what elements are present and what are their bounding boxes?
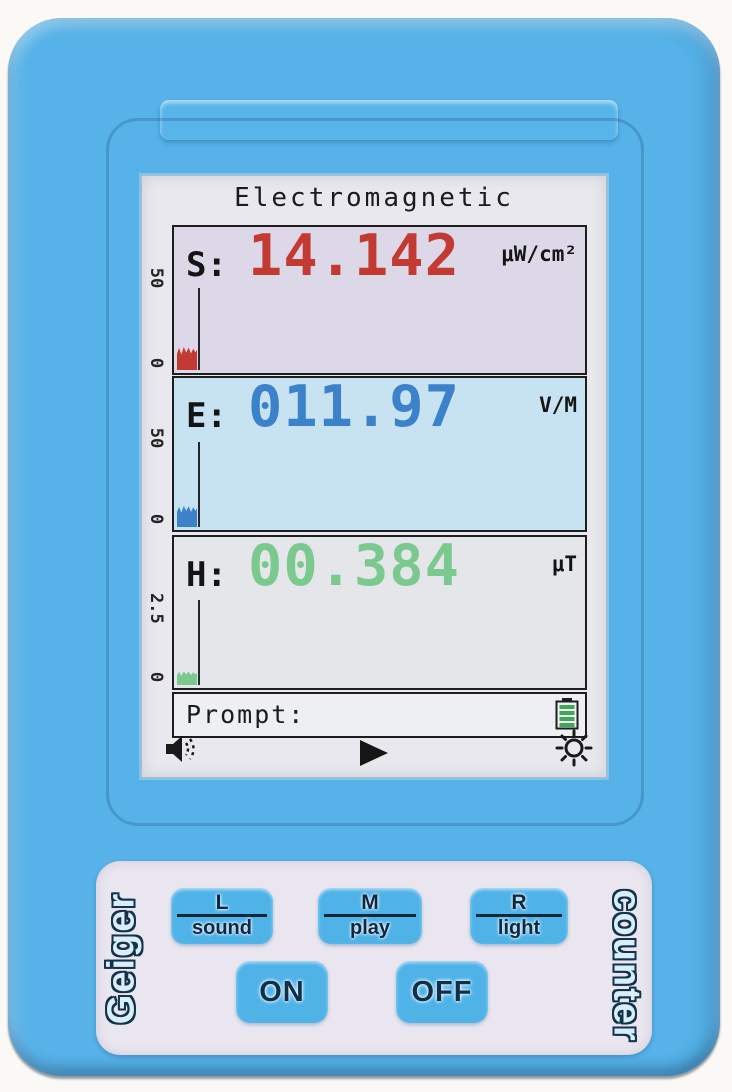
play-icon	[357, 738, 391, 768]
e-channel-unit: V/M	[539, 393, 577, 417]
counter-side-label: counter	[605, 889, 648, 1042]
right-function-button[interactable]: R light	[470, 888, 568, 944]
h-reading-panel: H: 00.384 μT	[172, 535, 587, 690]
s-axis-max-tick: 50	[146, 265, 166, 291]
middle-button-label: play	[350, 918, 390, 939]
h-axis-min-tick: 0	[146, 664, 166, 690]
h-axis-max-tick: 2.5	[146, 593, 166, 619]
geiger-side-label: Geiger	[101, 892, 144, 1024]
s-chart-axis	[198, 288, 200, 370]
s-axis-min-tick: 0	[146, 350, 166, 376]
h-chart-bar	[177, 670, 197, 685]
on-button[interactable]: ON	[236, 961, 328, 1023]
middle-button-key: M	[361, 893, 379, 913]
s-channel-label: S:	[186, 245, 227, 285]
lcd-screen: Electromagnetic S: 14.142 μW/cm² 50 0 E:…	[141, 175, 607, 778]
speaker-icon	[160, 730, 198, 768]
e-channel-value: 011.97	[248, 374, 460, 440]
e-reading-panel: E: 011.97 V/M	[172, 376, 587, 532]
screen-title: Electromagnetic	[142, 183, 606, 213]
brightness-icon	[554, 728, 594, 768]
detector-device-body: Electromagnetic S: 14.142 μW/cm² 50 0 E:…	[8, 18, 720, 1076]
s-channel-value: 14.142	[248, 223, 460, 289]
right-button-label: light	[498, 918, 540, 939]
e-axis-min-tick: 0	[146, 506, 166, 532]
e-axis-max-tick: 50	[146, 425, 166, 451]
s-channel-unit: μW/cm²	[501, 242, 577, 266]
s-reading-panel: S: 14.142 μW/cm²	[172, 225, 587, 375]
battery-icon	[555, 698, 579, 730]
left-button-key: L	[216, 893, 229, 913]
off-button[interactable]: OFF	[396, 961, 488, 1023]
h-chart-axis	[198, 600, 200, 685]
right-button-key: R	[511, 893, 526, 913]
prompt-box: Prompt:	[172, 692, 587, 738]
e-channel-label: E:	[186, 396, 227, 436]
h-channel-label: H:	[186, 555, 227, 595]
e-chart-bar	[177, 504, 197, 527]
e-chart-axis	[198, 442, 200, 527]
h-channel-value: 00.384	[248, 533, 460, 599]
prompt-label: Prompt:	[186, 700, 305, 729]
product-photo-stage: Electromagnetic S: 14.142 μW/cm² 50 0 E:…	[0, 0, 732, 1092]
h-channel-unit: μT	[552, 552, 577, 576]
s-chart-bar	[177, 345, 197, 370]
left-function-button[interactable]: L sound	[171, 888, 273, 944]
middle-function-button[interactable]: M play	[318, 888, 422, 944]
keypad-panel: L sound M play R light ON OFF	[96, 861, 652, 1055]
left-button-label: sound	[192, 918, 252, 939]
